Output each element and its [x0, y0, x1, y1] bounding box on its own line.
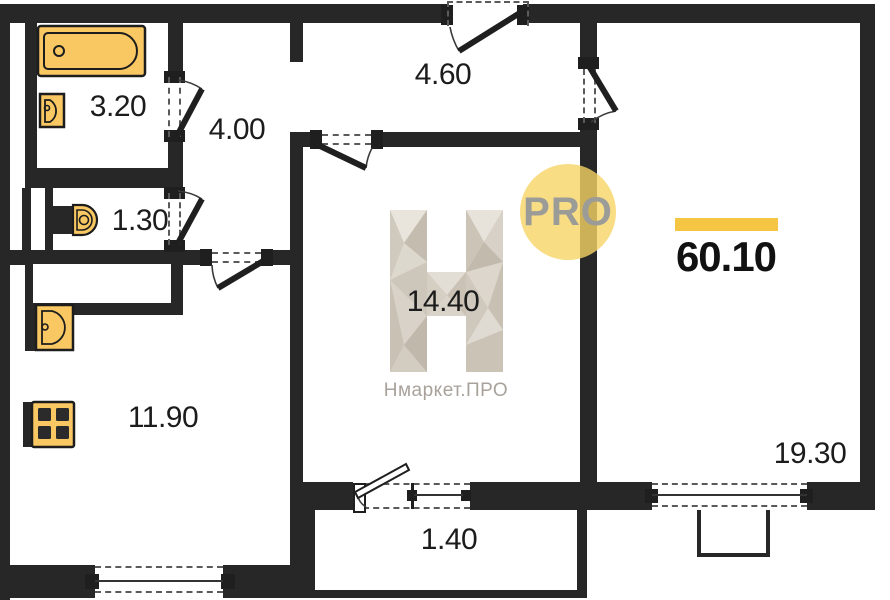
total-area-accent-bar	[675, 218, 778, 231]
kitchen-door-arc	[212, 265, 218, 288]
area-label-entry-hall: 4.60	[415, 58, 471, 92]
area-label-kitchen: 11.90	[128, 401, 198, 435]
bathroom-door-arc	[178, 80, 202, 89]
area-label-bathroom: 3.20	[90, 90, 146, 124]
total-area-value: 60.10	[652, 233, 800, 281]
kitchen-sink-icon	[36, 305, 73, 350]
bathroom-door-leaf	[177, 89, 202, 136]
area-label-balcony: 1.40	[421, 523, 477, 557]
entry-door-arc	[450, 27, 459, 51]
balcony-door-leaf	[355, 464, 409, 498]
toilet-door-leaf	[177, 199, 202, 245]
entry-door-leaf	[459, 11, 523, 51]
toilet-icon	[52, 205, 97, 235]
brand-watermark-text: Нмаркет.ПРО	[360, 380, 532, 402]
kitchen-door-leaf	[218, 260, 265, 288]
area-label-living-room: 14.40	[407, 285, 480, 319]
bathroom-sink-icon	[40, 94, 64, 127]
bedroom-door-arc	[591, 111, 616, 122]
living-door-arc	[366, 148, 372, 168]
floor-plan-canvas: PRO 3.20 4.00 4.60 1.30 14.40 11.90 1.40…	[0, 0, 890, 600]
toilet-door-arc	[178, 191, 202, 199]
stove-icon	[32, 402, 74, 447]
area-label-hallway: 4.00	[209, 113, 265, 147]
area-label-bedroom: 19.30	[774, 437, 847, 471]
living-door-leaf	[318, 145, 366, 168]
area-label-toilet: 1.30	[112, 204, 168, 238]
bathtub-icon	[38, 26, 145, 76]
pro-badge-label: PRO	[523, 190, 613, 235]
pro-badge: PRO	[520, 164, 616, 260]
bedroom-door-leaf	[589, 66, 616, 111]
